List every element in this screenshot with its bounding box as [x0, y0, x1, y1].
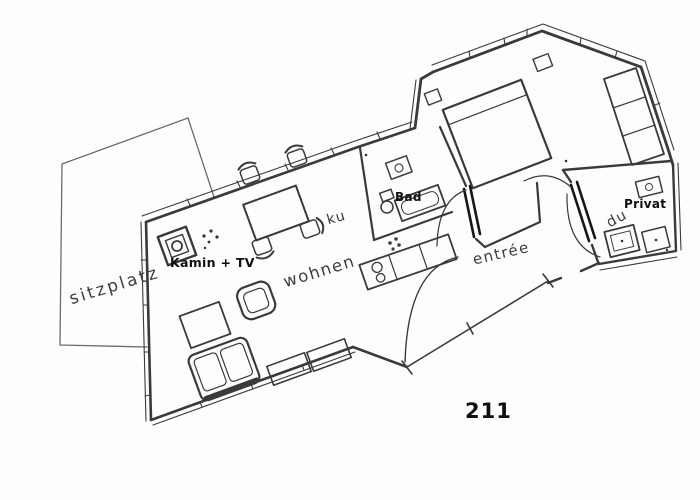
door-bathroom	[464, 186, 480, 237]
dining-chair	[299, 217, 325, 240]
vanity-sink	[386, 156, 412, 179]
label-private-room: Privat	[624, 197, 666, 211]
armchair	[235, 279, 278, 322]
label-bathroom: Bad	[395, 190, 422, 204]
wardrobe	[604, 68, 664, 165]
label-fireplace-tv: Kamin + TV	[170, 255, 255, 270]
nightstand	[533, 54, 553, 72]
door-bedroom-arc	[524, 176, 571, 187]
coffee-table	[179, 302, 230, 348]
label-room-number: 211	[465, 399, 512, 423]
kitchen-counter	[359, 234, 456, 289]
hearth-dots	[202, 229, 218, 249]
door-private	[571, 182, 595, 241]
stove-dots	[388, 237, 401, 250]
living-room-window-lines	[141, 122, 412, 425]
floorplan-drawing	[0, 0, 700, 500]
kitchen-sink	[371, 261, 384, 274]
entry-walls	[548, 263, 599, 283]
kitchen-sink	[375, 272, 386, 283]
hall-walls	[485, 183, 540, 247]
private-sink	[635, 176, 662, 197]
dining-table	[243, 186, 309, 241]
bedroom-walls	[415, 31, 673, 165]
nightstand	[424, 89, 441, 105]
toilet	[380, 189, 394, 213]
entree-arc	[405, 257, 458, 362]
floorplan: sitzplatz Kamin + TV ku Bad wohnen entré…	[0, 0, 700, 500]
entry-door-line	[402, 274, 553, 374]
bathroom-walls	[360, 127, 485, 247]
